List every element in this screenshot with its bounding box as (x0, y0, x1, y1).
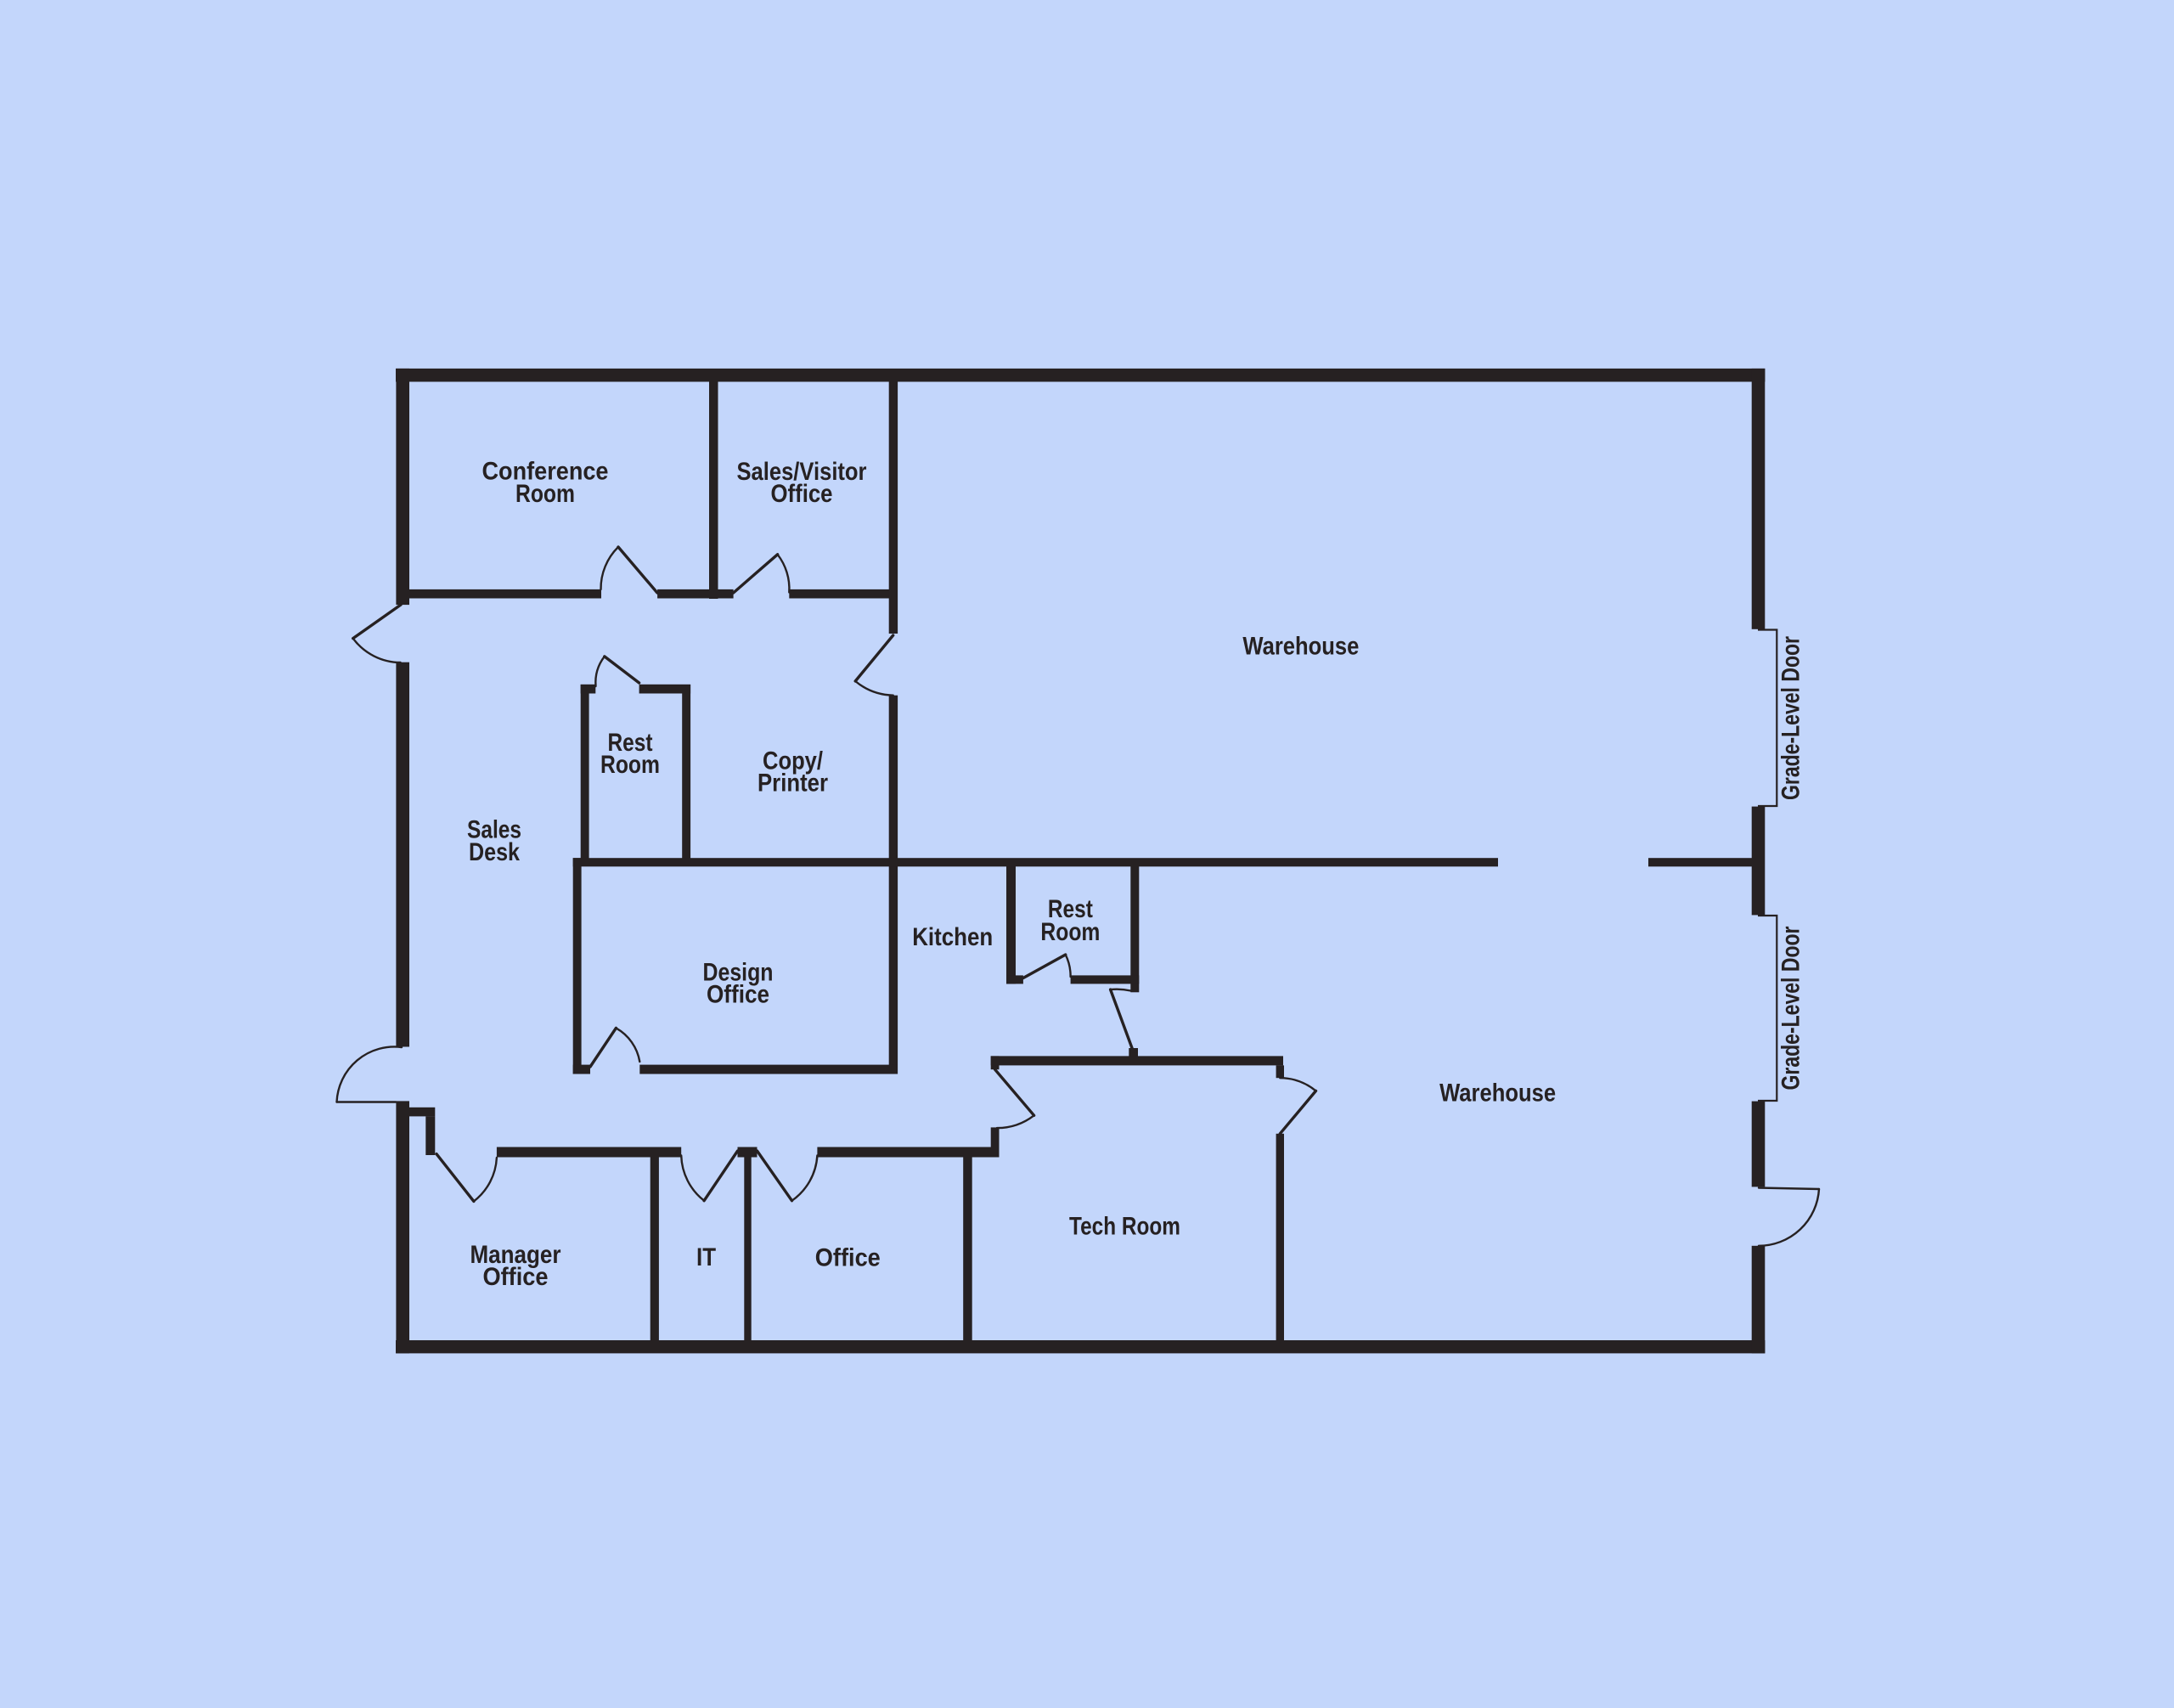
svg-text:Office: Office (483, 1263, 549, 1291)
svg-text:Warehouse: Warehouse (1439, 1079, 1556, 1107)
svg-text:Warehouse: Warehouse (1242, 633, 1359, 661)
svg-text:Office: Office (771, 480, 833, 508)
svg-text:Kitchen: Kitchen (912, 923, 993, 951)
svg-text:Grade-Level Door: Grade-Level Door (1777, 926, 1805, 1090)
svg-text:Room: Room (515, 480, 575, 508)
svg-text:Room: Room (600, 751, 660, 779)
svg-text:Office: Office (815, 1244, 881, 1272)
svg-text:Tech Room: Tech Room (1069, 1212, 1180, 1240)
svg-text:IT: IT (696, 1243, 716, 1271)
svg-text:Desk: Desk (469, 838, 520, 866)
svg-text:Office: Office (707, 981, 769, 1009)
svg-text:Room: Room (1040, 918, 1100, 946)
svg-text:Grade-Level Door: Grade-Level Door (1777, 636, 1805, 800)
svg-text:Printer: Printer (758, 769, 828, 798)
